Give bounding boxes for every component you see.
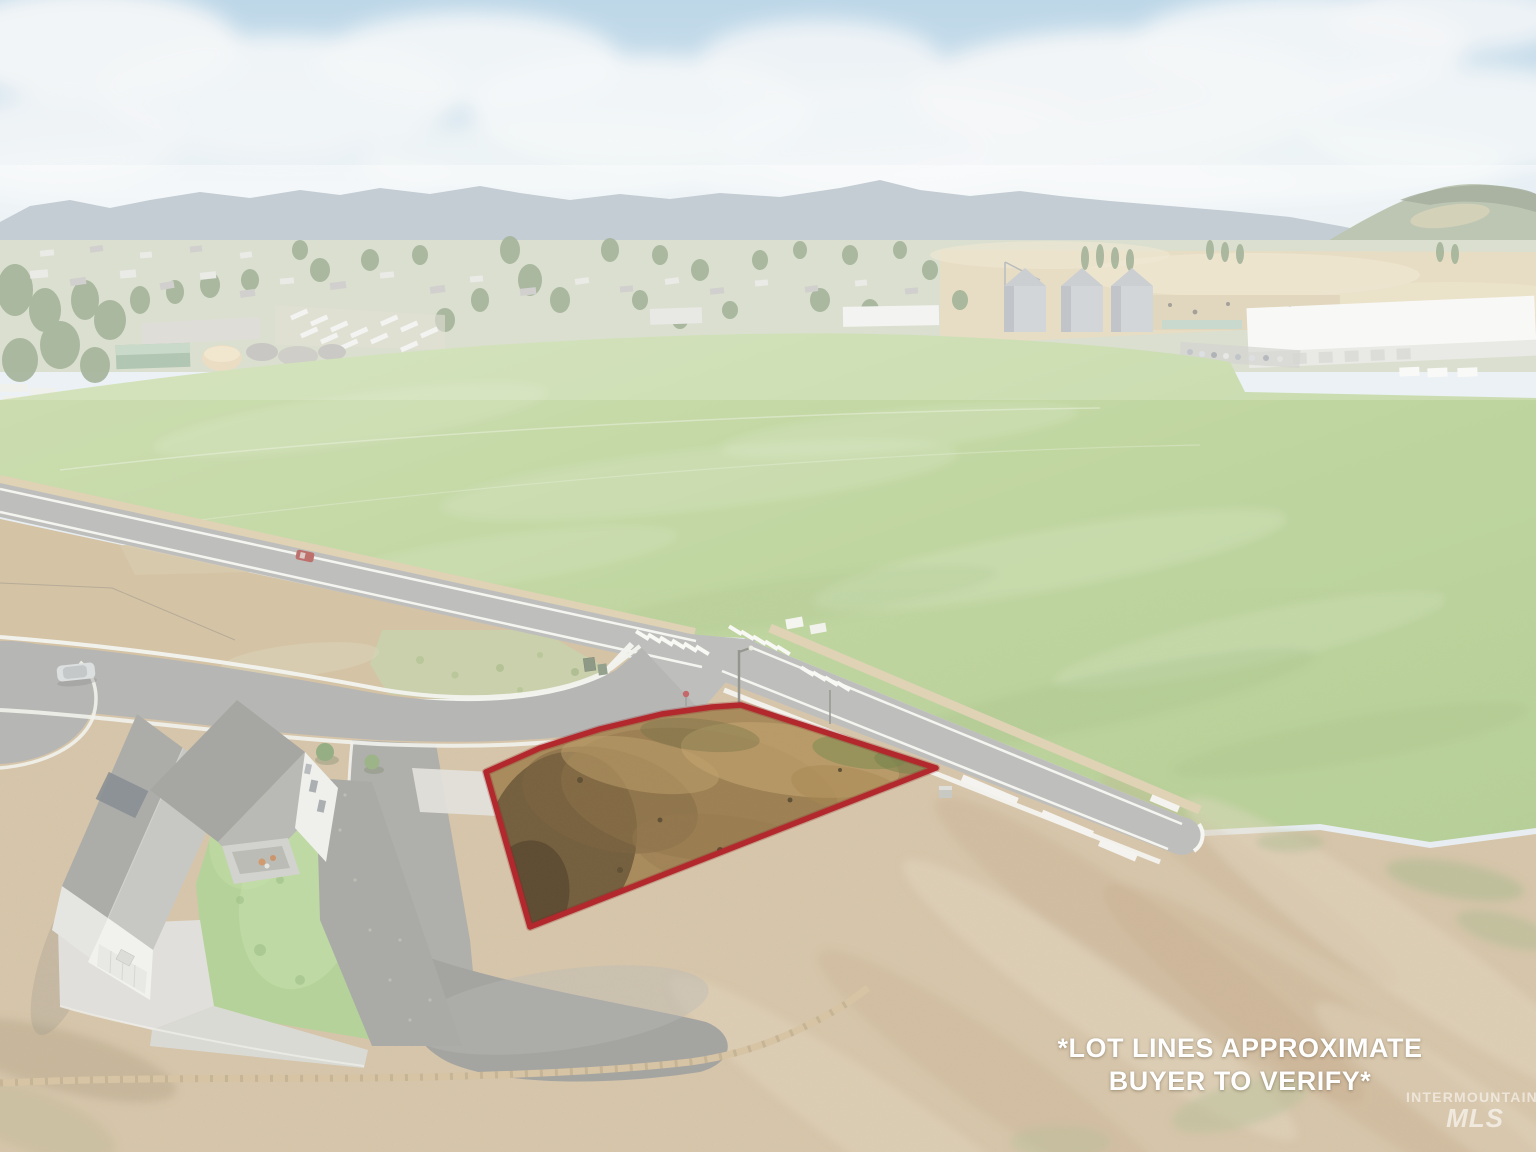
lot-disclaimer-text: *LOT LINES APPROXIMATE BUYER TO VERIFY*	[1040, 1032, 1440, 1098]
mls-watermark: INTERMOUNTAIN MLS	[1406, 1090, 1536, 1132]
watermark-line-2: MLS	[1406, 1105, 1504, 1132]
aerial-scene	[0, 0, 1536, 1152]
haze-overlay	[0, 165, 1536, 1152]
aerial-listing-photo: *LOT LINES APPROXIMATE BUYER TO VERIFY* …	[0, 0, 1536, 1152]
disclaimer-line-1: *LOT LINES APPROXIMATE	[1040, 1032, 1440, 1065]
disclaimer-line-2: BUYER TO VERIFY*	[1040, 1065, 1440, 1098]
